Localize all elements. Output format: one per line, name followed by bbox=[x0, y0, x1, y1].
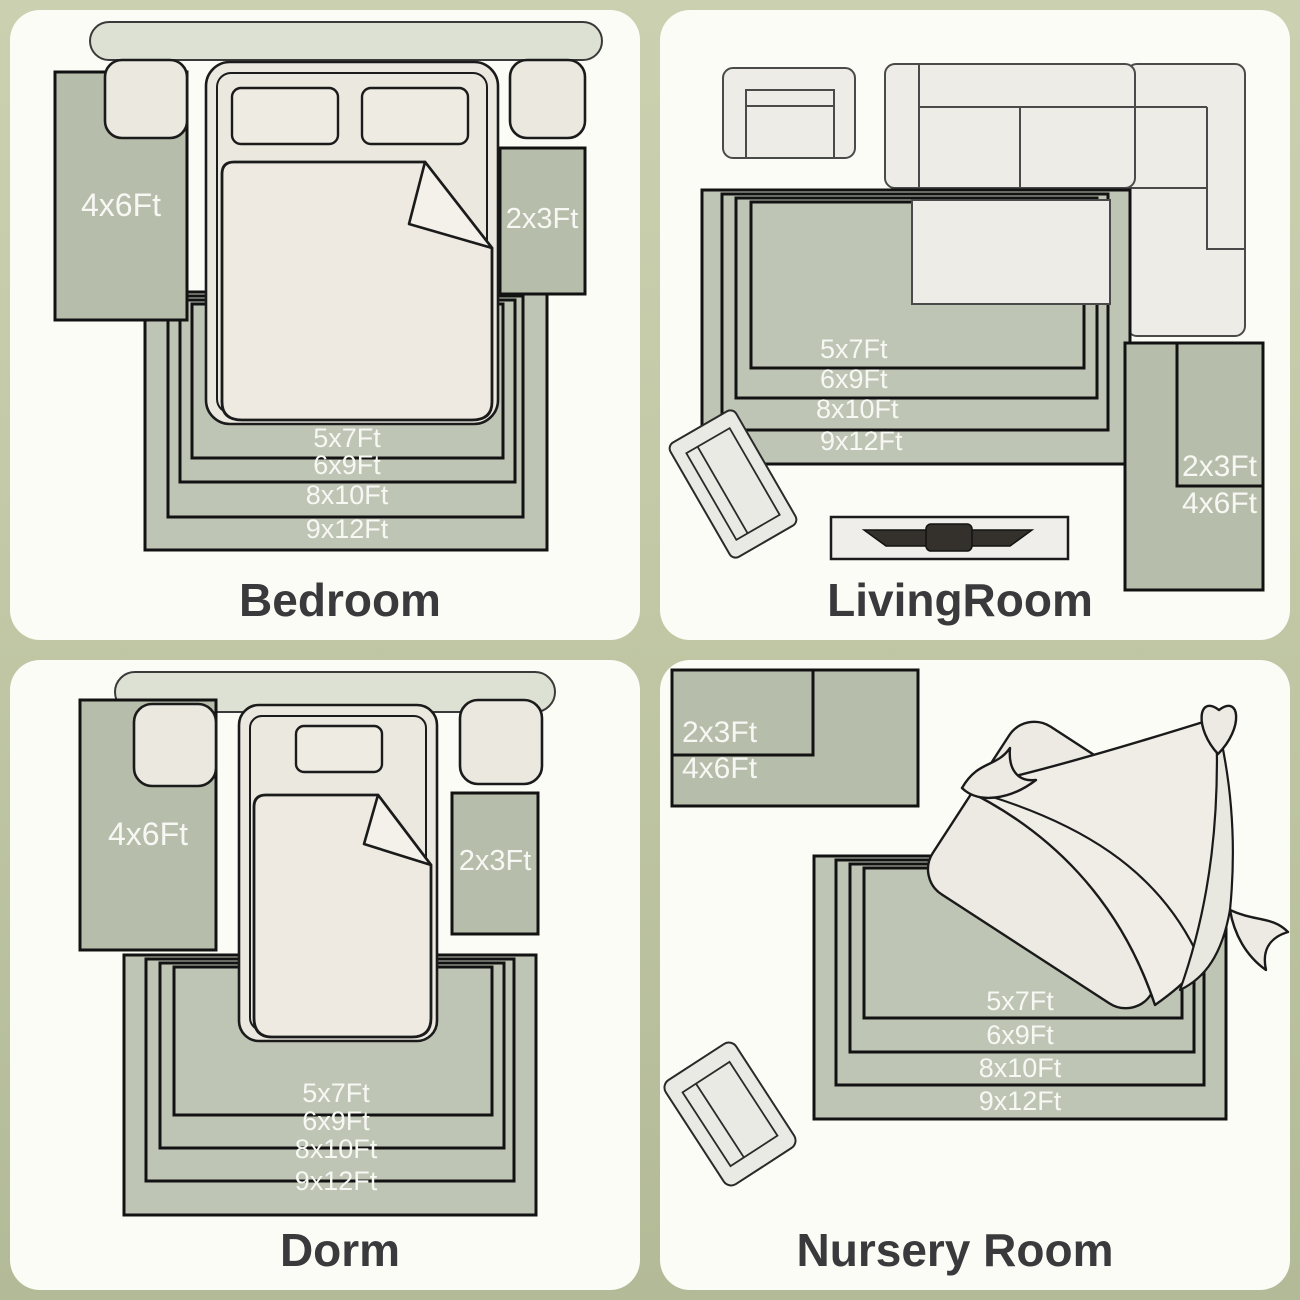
combo-rug-label-4x6: 4x6Ft bbox=[682, 752, 758, 785]
nursery-room-illustration: 2x3Ft 4x6Ft 5x7Ft 6x9Ft 8x10Ft 9x12Ft Nu… bbox=[660, 660, 1290, 1290]
rug-size-label-6x9: 6x9Ft bbox=[820, 364, 888, 394]
bed-illustration bbox=[206, 62, 498, 424]
rug-size-guide-infographic: 4x6Ft 2x3Ft 5x7Ft 6x9Ft 8x10Ft 9x12Ft Be… bbox=[0, 0, 1300, 1300]
panel-title-nursery-room: Nursery Room bbox=[797, 1224, 1114, 1276]
combo-rug-label-4x6: 4x6Ft bbox=[1182, 487, 1258, 520]
sofa-chaise-section bbox=[1127, 64, 1245, 336]
combo-rug-label-2x3: 2x3Ft bbox=[1182, 450, 1258, 483]
panel-title-living-room: LivingRoom bbox=[827, 574, 1093, 626]
rug-size-label-8x10: 8x10Ft bbox=[306, 480, 389, 510]
right-nightstand bbox=[510, 60, 585, 138]
rug-size-label-5x7: 5x7Ft bbox=[302, 1078, 370, 1108]
nursery-room-panel: 2x3Ft 4x6Ft 5x7Ft 6x9Ft 8x10Ft 9x12Ft Nu… bbox=[660, 660, 1290, 1290]
bedroom-panel: 4x6Ft 2x3Ft 5x7Ft 6x9Ft 8x10Ft 9x12Ft Be… bbox=[10, 10, 640, 640]
twin-bed-illustration bbox=[239, 705, 437, 1041]
rug-size-label-9x12: 9x12Ft bbox=[979, 1086, 1062, 1116]
tv-console-illustration bbox=[831, 517, 1068, 559]
left-nightstand bbox=[134, 704, 216, 786]
pillow bbox=[296, 726, 382, 772]
right-rug-size-label: 2x3Ft bbox=[459, 845, 532, 877]
rug-size-label-8x10: 8x10Ft bbox=[816, 394, 899, 424]
dorm-panel: 4x6Ft 2x3Ft 5x7Ft 6x9Ft 8x10Ft 9x12Ft Do… bbox=[10, 660, 640, 1290]
rug-size-label-8x10: 8x10Ft bbox=[295, 1134, 378, 1164]
left-nightstand bbox=[105, 60, 187, 138]
living-room-illustration: 5x7Ft 6x9Ft 8x10Ft 9x12Ft 2x3Ft 4x6Ft Li… bbox=[660, 10, 1290, 640]
right-rug-size-label: 2x3Ft bbox=[506, 203, 579, 235]
armchair-illustration bbox=[723, 68, 855, 158]
rug-size-label-9x12: 9x12Ft bbox=[306, 514, 389, 544]
left-rug-size-label: 4x6Ft bbox=[81, 187, 161, 223]
sofa-horizontal-section bbox=[885, 64, 1135, 188]
dorm-illustration: 4x6Ft 2x3Ft 5x7Ft 6x9Ft 8x10Ft 9x12Ft Do… bbox=[10, 660, 640, 1290]
rug-size-label-5x7: 5x7Ft bbox=[313, 423, 381, 453]
tent-right-fabric-spikes bbox=[1230, 910, 1288, 970]
rug-size-label-5x7: 5x7Ft bbox=[986, 986, 1054, 1016]
panel-title-dorm: Dorm bbox=[280, 1224, 400, 1276]
rug-size-label-5x7: 5x7Ft bbox=[820, 334, 888, 364]
rug-size-label-9x12: 9x12Ft bbox=[295, 1166, 378, 1196]
rug-size-label-6x9: 6x9Ft bbox=[313, 450, 381, 480]
panel-title-bedroom: Bedroom bbox=[239, 574, 441, 626]
tilted-play-mat bbox=[661, 1039, 799, 1189]
rug-size-label-6x9: 6x9Ft bbox=[302, 1106, 370, 1136]
left-rug-size-label: 4x6Ft bbox=[108, 816, 188, 852]
tv-stand-base bbox=[926, 524, 972, 551]
rug-size-label-8x10: 8x10Ft bbox=[979, 1053, 1062, 1083]
headboard-wall-shelf bbox=[90, 22, 602, 60]
armchair-body bbox=[723, 68, 855, 158]
pillow-left bbox=[232, 88, 338, 144]
rug-size-label-9x12: 9x12Ft bbox=[820, 426, 903, 456]
right-nightstand bbox=[460, 700, 542, 784]
rug-size-label-6x9: 6x9Ft bbox=[986, 1020, 1054, 1050]
living-room-panel: 5x7Ft 6x9Ft 8x10Ft 9x12Ft 2x3Ft 4x6Ft Li… bbox=[660, 10, 1290, 640]
coffee-table bbox=[912, 200, 1110, 304]
bedroom-illustration: 4x6Ft 2x3Ft 5x7Ft 6x9Ft 8x10Ft 9x12Ft Be… bbox=[10, 10, 640, 640]
combo-rug-label-2x3: 2x3Ft bbox=[682, 716, 758, 749]
pillow-right bbox=[362, 88, 468, 144]
